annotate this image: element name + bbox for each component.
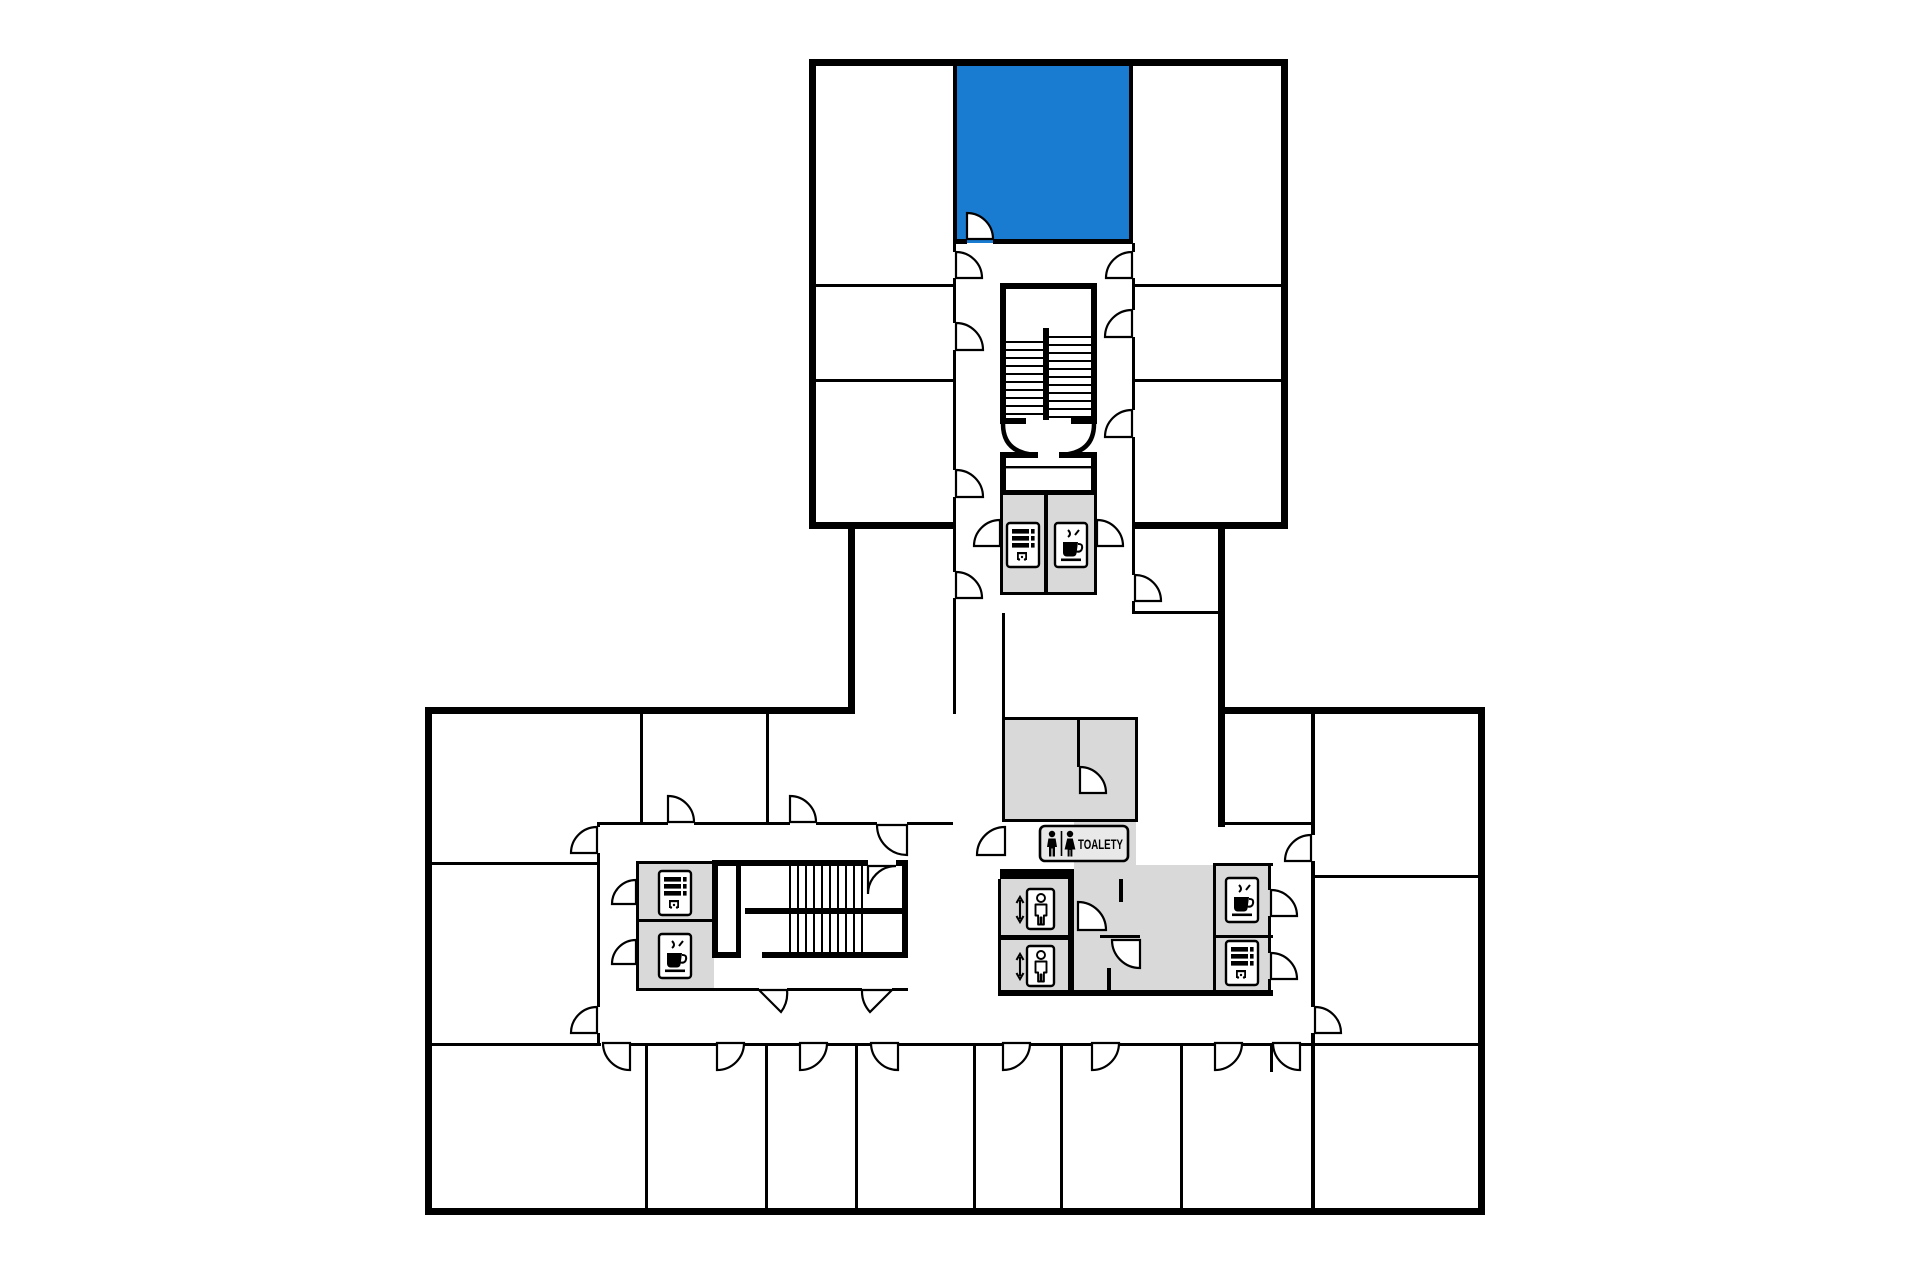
floor-plan-page: TOALETY [0,0,1920,1276]
toilets-sign-label: TOALETY [1078,836,1123,852]
vending-machine-icon [1226,941,1258,985]
toilets-block [1004,719,1136,820]
toilets-sign: TOALETY [1040,826,1128,861]
floor-plan: TOALETY [0,0,1920,1276]
coffee-icon [659,934,691,978]
highlighted-unit-room[interactable] [956,62,1132,243]
coffee-icon [1226,878,1258,922]
vending-machine-icon [1007,523,1039,567]
vending-machine-icon [659,871,691,915]
coffee-icon [1055,523,1087,567]
